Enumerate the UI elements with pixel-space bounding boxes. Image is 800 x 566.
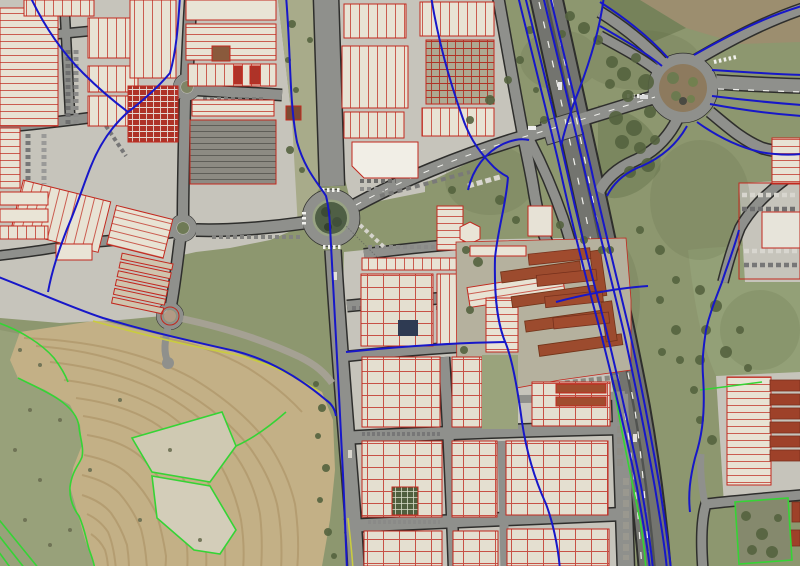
depot-warehouse	[762, 212, 800, 248]
striped-warehouse	[727, 377, 771, 485]
main-avenue-north	[326, 0, 332, 186]
map-image[interactable]	[0, 0, 800, 566]
shade-structure	[392, 487, 418, 515]
retail-store	[352, 142, 418, 178]
interchange-roundabout	[654, 59, 712, 117]
west-industrial-roundabout	[173, 218, 193, 238]
dense-red-parcel-cluster	[128, 86, 178, 142]
hexagonal-building	[460, 222, 480, 244]
map-canvas[interactable]	[0, 0, 800, 566]
